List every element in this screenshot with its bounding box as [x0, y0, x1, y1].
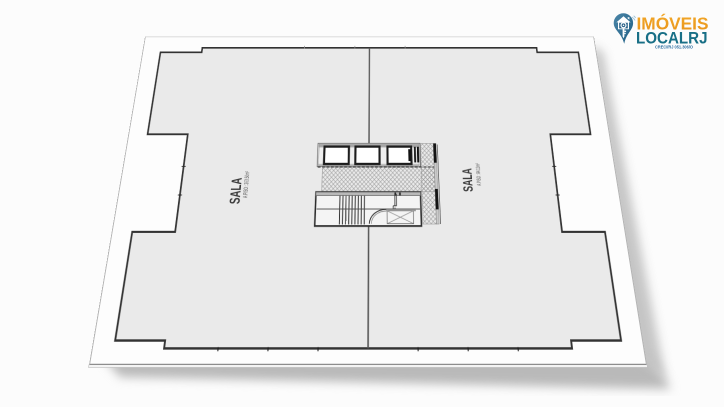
svg-text:SALA: SALA [226, 178, 245, 204]
svg-text:CRECI/RJ 051.306/O: CRECI/RJ 051.306/O [655, 45, 693, 50]
svg-text:SALA: SALA [459, 168, 476, 192]
